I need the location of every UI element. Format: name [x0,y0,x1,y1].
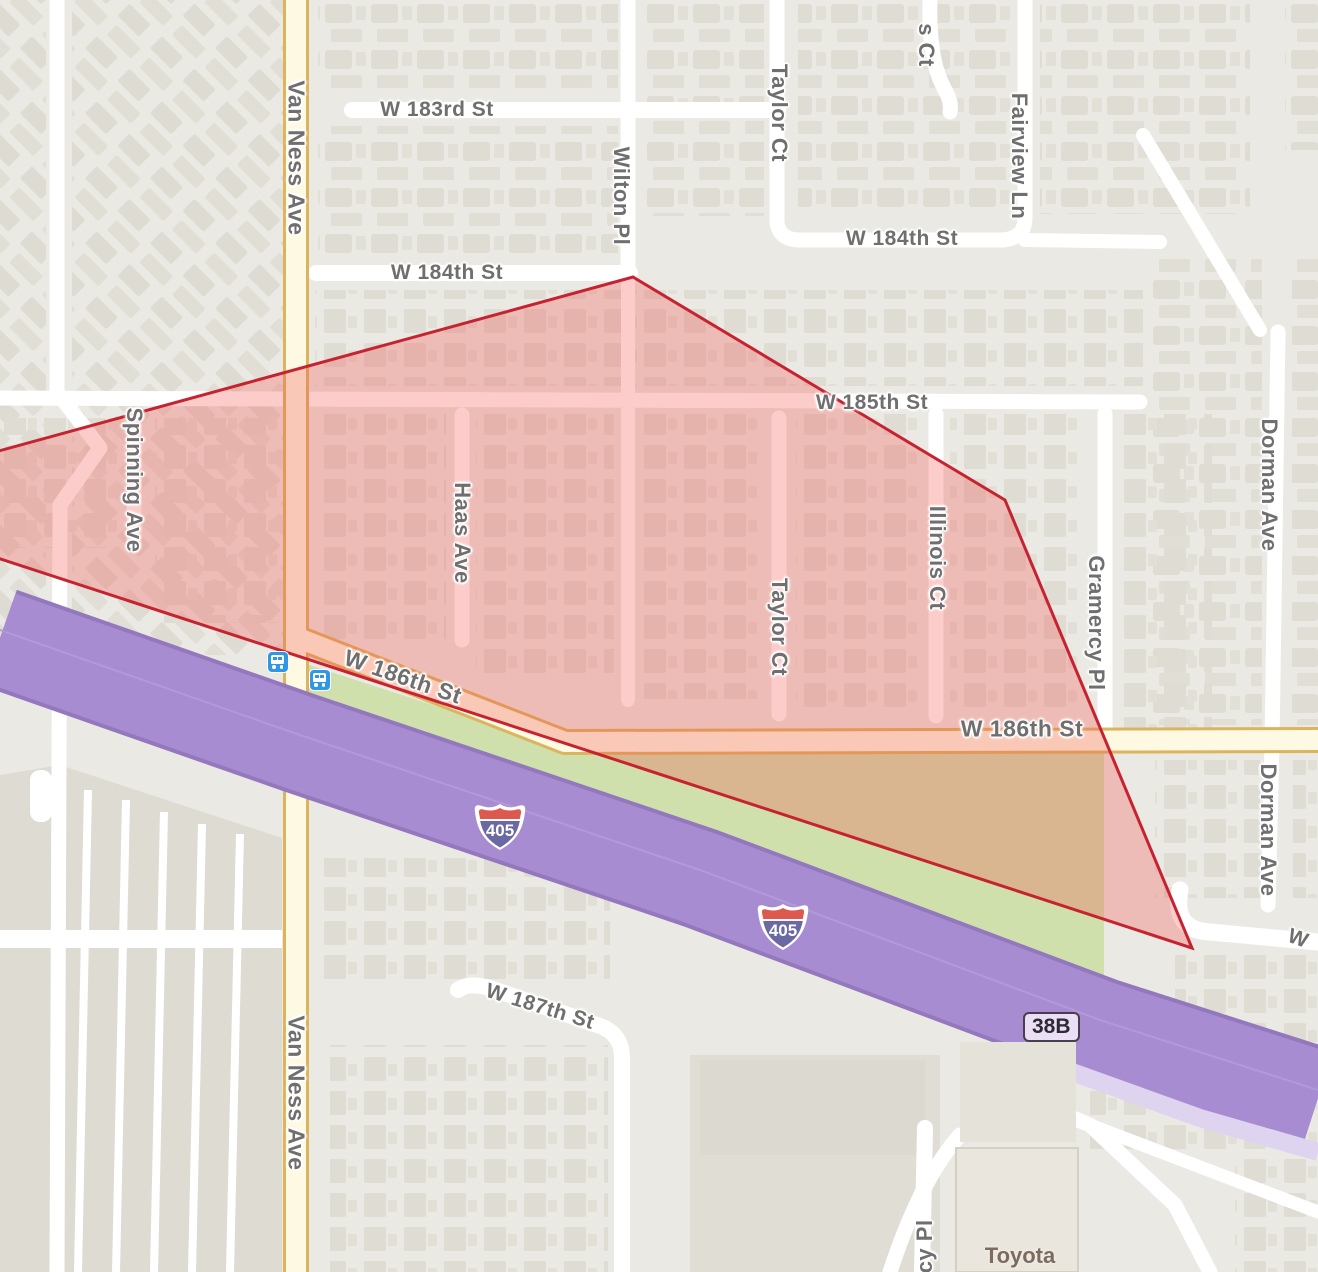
street-label-w-184th-st-east: W 184th St [846,227,958,251]
street-label-taylor-ct-mid: Taylor Ct [766,578,792,676]
svg-text:405: 405 [486,821,514,840]
street-label-dorman-ave-bottom: Dorman Ave [1255,764,1281,897]
street-label-w-184th-st-west: W 184th St [391,261,503,285]
svg-text:405: 405 [769,921,797,940]
street-label-fairview-ln: Fairview Ln [1006,93,1032,220]
i405-shield-east: 405 [755,902,811,952]
street-label-van-ness-ave-bottom: Van Ness Ave [283,1015,310,1170]
street-label-wilton-pl: Wilton Pl [608,147,634,245]
street-label-illinois-ct: Illinois Ct [924,506,950,611]
toyota-building [956,1042,1078,1272]
street-label-w-183rd-st: W 183rd St [380,98,494,122]
bus-stop-1-bus-icon[interactable] [267,651,289,673]
map-canvas[interactable]: W 183rd StVan Ness AveWilton PlTaylor Ct… [0,0,1318,1272]
street-label-w-186th-st-east: W 186th St [961,716,1084,743]
street-label-spinning-ave: Spinning Ave [121,408,147,553]
poi-label-toyota: Toyota [985,1243,1055,1269]
street-label-taylor-ct-top: Taylor Ct [766,64,792,162]
street-label-gramercy-pl-mid: Gramercy Pl [1083,555,1109,690]
parking-lot [0,765,282,1272]
street-label-s-ct-partial: s Ct [913,23,939,67]
bus-stop-2-bus-icon[interactable] [309,669,331,691]
street-label-w-185th-st: W 185th St [816,391,928,415]
street-label-gramercy-pl-partial: Gramercy Pl [912,1219,938,1272]
i405-shield-west: 405 [472,802,528,852]
street-label-haas-ave: Haas Ave [449,482,475,583]
street-label-dorman-ave-top: Dorman Ave [1256,419,1282,552]
street-label-van-ness-ave-top: Van Ness Ave [283,80,310,235]
exit-badge-38b: 38B [1023,1012,1080,1042]
map-base-layer [0,0,1318,1272]
